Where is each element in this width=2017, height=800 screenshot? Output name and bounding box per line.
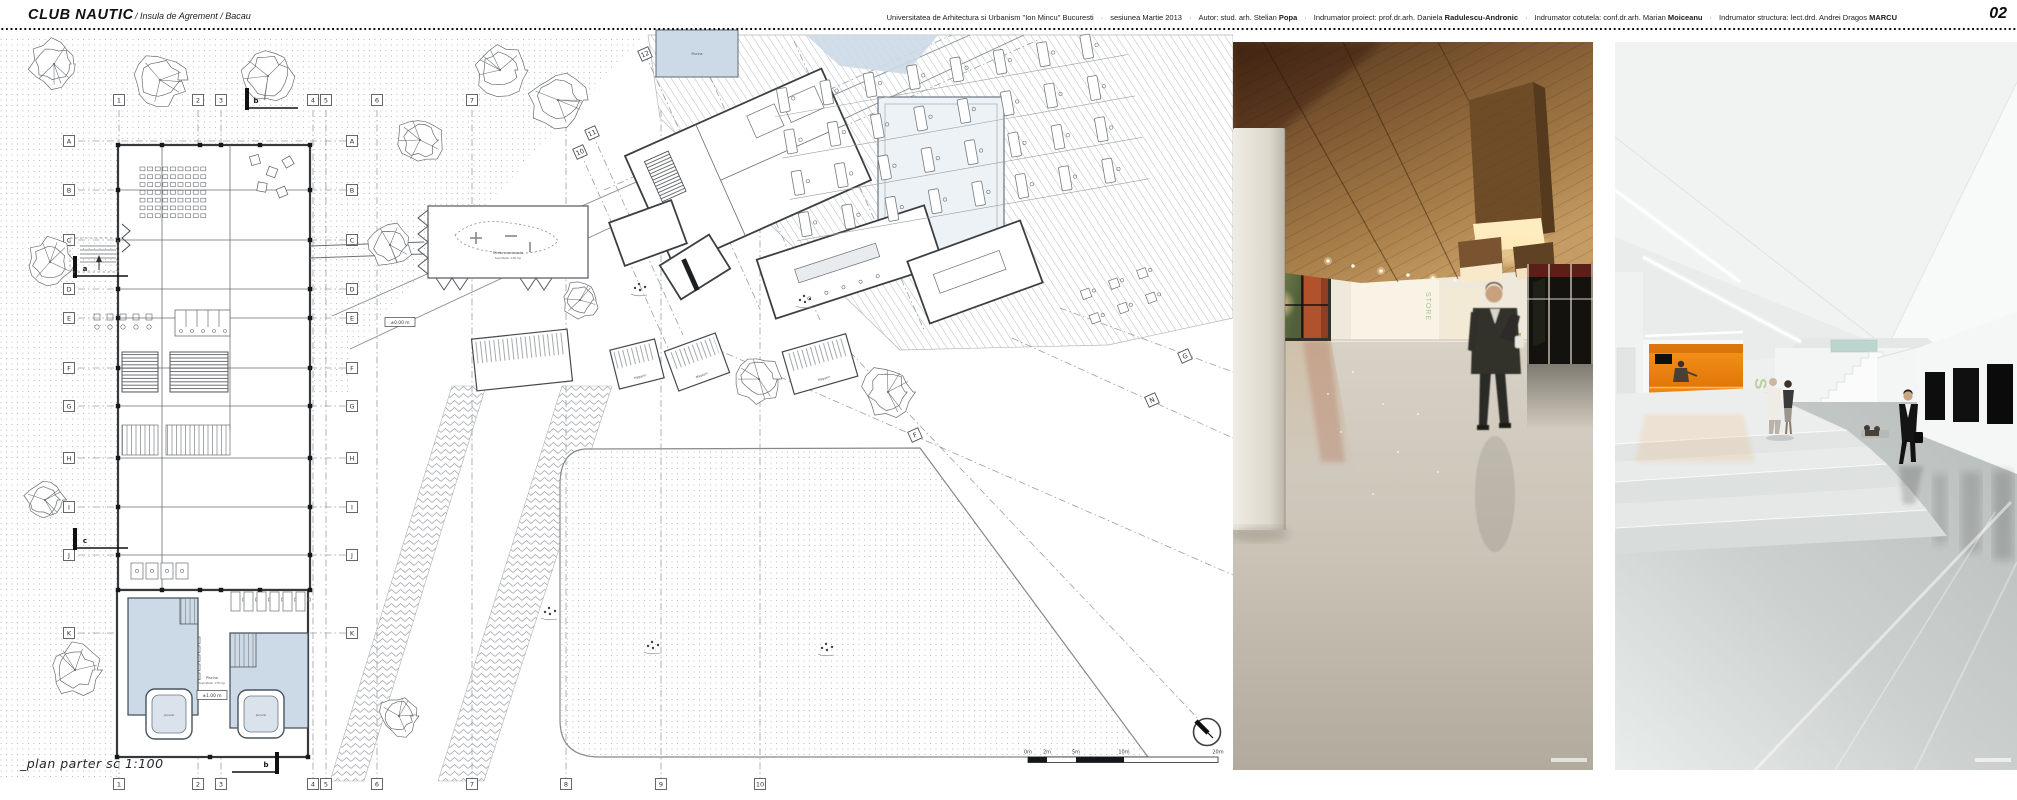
svg-text:B: B	[67, 186, 71, 194]
project-subtitle: / Insula de Agrement / Bacau	[135, 11, 251, 21]
seat	[201, 183, 206, 187]
svg-text:K: K	[350, 629, 355, 637]
seat	[140, 183, 145, 187]
seat	[155, 167, 160, 171]
chair	[161, 563, 173, 579]
credit-item: Autor: stud. arh. Stelian Popa	[1198, 13, 1297, 22]
grid-line	[1012, 338, 1233, 438]
grid-marker: E	[64, 313, 75, 324]
seat	[140, 190, 145, 194]
seat	[193, 183, 198, 187]
grid-marker: 2	[193, 95, 204, 106]
grid-marker: D	[347, 284, 358, 295]
seat	[193, 198, 198, 202]
kiosk: Magazin	[782, 334, 858, 394]
svg-text:F: F	[67, 364, 71, 372]
column-mark	[116, 287, 120, 291]
seat	[163, 206, 168, 210]
north-arrow-icon	[1194, 719, 1221, 746]
sun-lounger	[257, 592, 266, 611]
pool-steps	[180, 598, 198, 624]
seat	[155, 206, 160, 210]
column-mark	[116, 404, 120, 408]
seat	[140, 206, 145, 210]
seat	[148, 190, 153, 194]
svg-text:K: K	[67, 629, 72, 637]
column-mark	[308, 366, 312, 370]
svg-text:c: c	[83, 537, 87, 545]
svg-text:J: J	[67, 551, 70, 559]
column-mark	[116, 456, 120, 460]
svg-text:Suprafata: 130 mp: Suprafata: 130 mp	[495, 256, 521, 260]
seat	[193, 214, 198, 218]
seat	[201, 167, 206, 171]
grid-marker: K	[347, 628, 358, 639]
grid-marker: 9	[656, 779, 667, 790]
seat	[186, 183, 191, 187]
svg-text:Piscina: Piscina	[691, 52, 702, 56]
clerestory-window	[1831, 340, 1877, 352]
column-mark	[258, 143, 262, 147]
grid-marker: D	[64, 284, 75, 295]
svg-text:D: D	[349, 285, 354, 293]
svg-text:A: A	[350, 137, 355, 145]
column-mark	[219, 588, 223, 592]
seat	[178, 214, 183, 218]
svg-text:H: H	[67, 454, 72, 462]
plan-title: _plan parter sc 1:100	[19, 756, 164, 771]
svg-text:D: D	[66, 285, 71, 293]
seat	[201, 190, 206, 194]
svg-text:B: B	[350, 186, 354, 194]
render-photo-white-atrium: SPA	[1615, 42, 2017, 770]
presentation-board: CLUB NAUTIC / Insula de Agrement / Bacau…	[0, 0, 2017, 800]
column-mark	[198, 588, 202, 592]
credits-separator: ·	[1189, 13, 1192, 22]
credit-item: Indrumator structura: lect.drd. Andrei D…	[1719, 13, 1897, 22]
svg-text:1: 1	[117, 96, 121, 104]
credits-separator: ·	[1304, 13, 1307, 22]
svg-text:E: E	[67, 314, 71, 322]
far-wall-and-stair	[1775, 340, 1937, 408]
seat	[186, 198, 191, 202]
seat	[163, 198, 168, 202]
beach-area	[560, 448, 1148, 757]
column-mark	[308, 188, 312, 192]
seat	[148, 198, 153, 202]
pool-steps	[230, 633, 256, 667]
seat	[193, 167, 198, 171]
svg-text:2m: 2m	[1043, 750, 1051, 756]
seat	[170, 167, 175, 171]
seat	[148, 175, 153, 179]
seat	[178, 206, 183, 210]
grid-marker: 1	[114, 779, 125, 790]
tree	[736, 359, 782, 405]
furniture	[249, 154, 260, 165]
seat	[170, 198, 175, 202]
changing-cubicles	[166, 425, 230, 455]
grid-marker: 5	[321, 779, 332, 790]
grid-marker: G	[347, 401, 358, 412]
seat	[155, 198, 160, 202]
seat	[148, 214, 153, 218]
grid-marker: A	[347, 136, 358, 147]
events-terrace	[428, 206, 588, 278]
grid-marker: A	[64, 136, 75, 147]
stair	[122, 352, 158, 392]
dark-doorway	[1953, 368, 1979, 422]
seat	[201, 214, 206, 218]
tree	[379, 698, 419, 738]
grid-marker: I	[64, 502, 75, 513]
seat	[201, 198, 206, 202]
svg-text:H: H	[350, 454, 355, 462]
svg-text:3: 3	[219, 96, 223, 104]
seat	[178, 167, 183, 171]
svg-text:G: G	[66, 402, 71, 410]
floor-plan: 123456712345678910AABBCCDDEEFFGGHHIIJJKK…	[0, 0, 1233, 800]
seat	[140, 214, 145, 218]
credits-separator: ·	[1710, 13, 1713, 22]
dark-doorway	[1987, 364, 2013, 424]
seat	[178, 183, 183, 187]
dark-doorway	[1925, 372, 1945, 420]
seat	[155, 190, 160, 194]
kiosk	[472, 329, 573, 391]
column-mark	[308, 588, 312, 592]
tv-screen	[1655, 354, 1672, 364]
svg-text:F: F	[350, 364, 354, 372]
seat	[186, 214, 191, 218]
svg-text:7: 7	[470, 96, 474, 104]
seat	[170, 175, 175, 179]
svg-text:1: 1	[117, 780, 121, 788]
briefcase	[1914, 432, 1923, 443]
seat	[163, 183, 168, 187]
grid-marker: C	[347, 235, 358, 246]
seat	[148, 167, 153, 171]
grid-marker: 11	[585, 126, 600, 141]
svg-text:10m: 10m	[1118, 750, 1129, 756]
column-mark	[308, 456, 312, 460]
column-mark	[116, 366, 120, 370]
svg-text:7: 7	[470, 780, 474, 788]
chair	[176, 563, 188, 579]
column-mark	[219, 143, 223, 147]
grid-marker: J	[64, 550, 75, 561]
svg-text:Terasa evenimente: Terasa evenimente	[492, 251, 523, 255]
grid-marker: I	[347, 502, 358, 513]
credits-separator: ·	[1525, 13, 1528, 22]
sun-lounger	[231, 592, 240, 611]
seat	[170, 190, 175, 194]
seat	[140, 198, 145, 202]
kiosk: Magazin	[610, 339, 664, 389]
grid-marker: N	[1145, 393, 1160, 408]
column-mark	[116, 588, 120, 592]
furniture	[257, 182, 267, 192]
grid-marker: 5	[321, 95, 332, 106]
svg-text:Piscina: Piscina	[206, 676, 218, 680]
svg-text:9: 9	[659, 780, 663, 788]
svg-text:Suprafata: 178 mp: Suprafata: 178 mp	[199, 681, 225, 685]
svg-text:±1.00 m: ±1.00 m	[202, 693, 221, 699]
svg-text:2: 2	[196, 96, 200, 104]
kiosk: Magazin	[664, 333, 729, 391]
sun-lounger	[270, 592, 279, 611]
svg-text:3: 3	[219, 780, 223, 788]
seat	[163, 214, 168, 218]
svg-text:6: 6	[375, 780, 379, 788]
seat	[155, 214, 160, 218]
svg-text:Jacuzzi: Jacuzzi	[255, 713, 266, 717]
svg-text:2: 2	[196, 780, 200, 788]
svg-text:±0.00 m: ±0.00 m	[390, 320, 409, 326]
grid-marker: G	[1178, 349, 1193, 364]
grid-marker: G	[64, 401, 75, 412]
grid-marker: B	[64, 185, 75, 196]
svg-text:b: b	[263, 761, 268, 769]
chair	[131, 563, 143, 579]
column-mark	[308, 316, 312, 320]
render-credit-smudge	[1975, 758, 2011, 762]
column-mark	[208, 755, 212, 759]
title-block: CLUB NAUTIC / Insula de Agrement / Bacau…	[0, 0, 2017, 27]
credit-item: Universitatea de Arhitectura si Urbanism…	[887, 13, 1094, 22]
column-mark	[308, 287, 312, 291]
svg-text:J: J	[350, 551, 353, 559]
grid-marker: 10	[755, 779, 766, 790]
grid-marker: 4	[308, 779, 319, 790]
dotted-separator	[0, 27, 2017, 31]
column-mark	[116, 553, 120, 557]
seat	[193, 175, 198, 179]
grid-marker: 10	[573, 145, 588, 160]
svg-text:8: 8	[564, 780, 568, 788]
svg-text:5: 5	[324, 780, 328, 788]
seat	[201, 175, 206, 179]
svg-text:10: 10	[756, 780, 764, 788]
column-mark	[308, 553, 312, 557]
grid-marker: 6	[372, 95, 383, 106]
credit-item: Indrumator cotutela: conf.dr.arh. Marian…	[1535, 13, 1703, 22]
sun-lounger	[283, 592, 292, 611]
svg-text:C: C	[67, 236, 72, 244]
render-credit-smudge	[1551, 758, 1587, 762]
svg-text:6: 6	[375, 96, 379, 104]
grid-marker: 2	[193, 779, 204, 790]
seat	[163, 190, 168, 194]
column-mark	[116, 143, 120, 147]
credit-item: Indrumator proiect: prof.dr.arh. Daniela…	[1314, 13, 1518, 22]
seat	[140, 167, 145, 171]
grid-marker: J	[347, 550, 358, 561]
column-mark	[308, 143, 312, 147]
grid-marker: F	[908, 428, 923, 443]
seat	[186, 175, 191, 179]
seat	[155, 175, 160, 179]
seat	[186, 190, 191, 194]
svg-text:I: I	[68, 503, 70, 511]
seat	[193, 190, 198, 194]
project-title: CLUB NAUTIC	[28, 7, 134, 23]
store-sign: STORE	[1424, 292, 1431, 321]
seat	[163, 167, 168, 171]
seat	[155, 183, 160, 187]
seat	[148, 206, 153, 210]
column-mark	[308, 404, 312, 408]
grid-marker: 1	[114, 95, 125, 106]
column-mark	[198, 143, 202, 147]
floor-plan-drawing: 123456712345678910AABBCCDDEEFFGGHHIIJJKK…	[0, 28, 1233, 790]
seat	[170, 214, 175, 218]
stair	[170, 352, 228, 392]
svg-text:I: I	[351, 503, 353, 511]
seat	[163, 175, 168, 179]
render-photo-wood-lobby: STORE	[1233, 42, 1593, 770]
changing-cubicles	[122, 425, 158, 455]
coffee-cup	[1515, 336, 1524, 348]
svg-text:4: 4	[311, 96, 315, 104]
column-mark	[308, 238, 312, 242]
column-mark	[258, 588, 262, 592]
svg-text:4: 4	[311, 780, 315, 788]
grid-marker: 3	[216, 95, 227, 106]
credits-separator: ·	[1101, 13, 1104, 22]
svg-text:5: 5	[324, 96, 328, 104]
seat	[178, 190, 183, 194]
entry-column	[1233, 128, 1289, 542]
svg-text:20m: 20m	[1212, 750, 1223, 756]
seat	[186, 167, 191, 171]
sun-lounger	[244, 592, 253, 611]
svg-text:5m: 5m	[1072, 750, 1080, 756]
grid-marker: E	[347, 313, 358, 324]
sun-lounger	[296, 592, 305, 611]
svg-text:0m: 0m	[1024, 750, 1032, 756]
grid-marker: F	[347, 363, 358, 374]
seat	[140, 175, 145, 179]
seat	[170, 206, 175, 210]
grid-marker: H	[64, 453, 75, 464]
credit-item: sesiunea Martie 2013	[1110, 13, 1182, 22]
seat	[178, 175, 183, 179]
seat	[148, 183, 153, 187]
people-marks	[541, 607, 557, 620]
seat	[186, 206, 191, 210]
seat	[193, 206, 198, 210]
tree	[862, 368, 916, 418]
grid-marker: B	[347, 185, 358, 196]
column-mark	[308, 505, 312, 509]
grid-marker: 3	[216, 779, 227, 790]
grid-marker: 8	[561, 779, 572, 790]
grid-marker: F	[64, 363, 75, 374]
seat	[201, 206, 206, 210]
column-mark	[306, 755, 310, 759]
column-mark	[116, 188, 120, 192]
svg-text:G: G	[349, 402, 354, 410]
chair	[146, 563, 158, 579]
column-mark	[116, 505, 120, 509]
svg-text:E: E	[350, 314, 354, 322]
grid-marker: H	[347, 453, 358, 464]
tree	[564, 282, 598, 319]
grid-marker: 6	[372, 779, 383, 790]
svg-text:A: A	[67, 137, 72, 145]
credits-line: Universitatea de Arhitectura si Urbanism…	[887, 13, 1897, 22]
grid-marker: 4	[308, 95, 319, 106]
svg-text:C: C	[350, 236, 355, 244]
page-number: 02	[1989, 5, 2007, 23]
column-mark	[116, 316, 120, 320]
column-mark	[160, 143, 164, 147]
people-marks	[631, 283, 647, 296]
svg-text:Jacuzzi: Jacuzzi	[163, 713, 174, 717]
column-mark	[160, 588, 164, 592]
grid-marker: K	[64, 628, 75, 639]
svg-text:b: b	[253, 97, 258, 105]
right-storefront-glazing	[1527, 264, 1593, 430]
seat	[178, 198, 183, 202]
grid-marker: 7	[467, 779, 478, 790]
grid-marker: 7	[467, 95, 478, 106]
seat	[170, 183, 175, 187]
